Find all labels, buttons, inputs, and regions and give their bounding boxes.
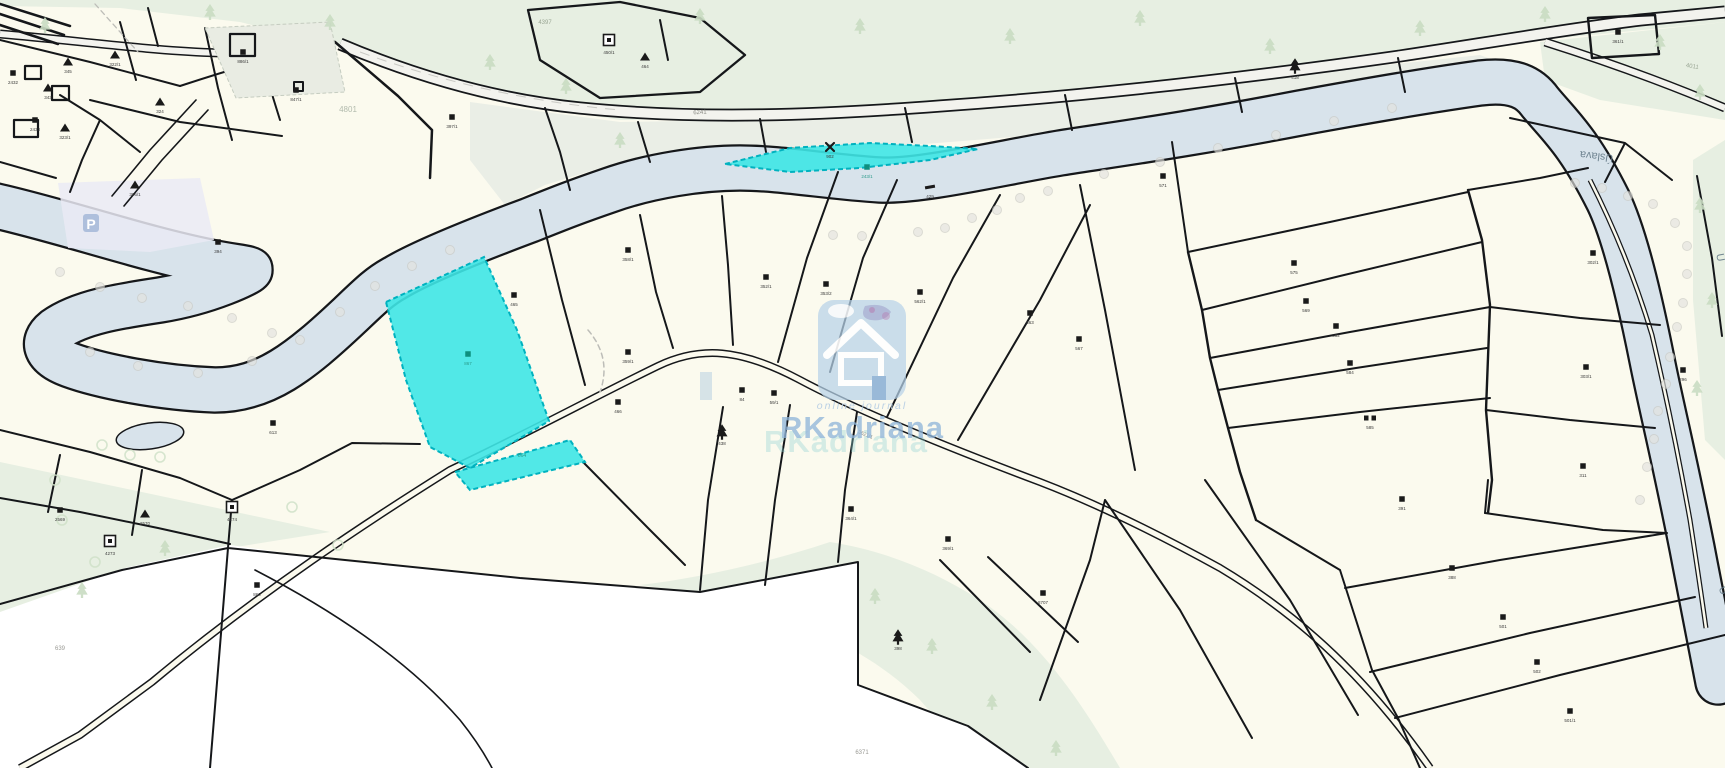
parcel-number: 902 xyxy=(826,154,834,159)
survey-dot xyxy=(1649,200,1658,209)
survey-dot xyxy=(1016,194,1025,203)
parcel-number: 613 xyxy=(269,430,277,435)
parcel-number: 398 xyxy=(894,646,902,651)
watermark-blotch-dot xyxy=(869,307,875,313)
survey-dot xyxy=(134,362,143,371)
watermark-brand: RKadriana xyxy=(780,410,944,445)
survey-dot xyxy=(371,282,380,291)
parcel-number: 2570 xyxy=(140,521,151,526)
parcel-number: 585 xyxy=(1366,425,1374,430)
parcel-number: 323/1 xyxy=(59,135,71,140)
parking-area: P xyxy=(58,178,214,252)
survey-dot xyxy=(858,232,867,241)
survey-dot xyxy=(228,314,237,323)
map-label: 864 xyxy=(518,453,527,459)
survey-dot xyxy=(1662,380,1671,389)
survey-dot xyxy=(1643,463,1652,472)
parcel-number: 388 xyxy=(1448,575,1456,580)
survey-dot xyxy=(1214,144,1223,153)
survey-dot xyxy=(336,308,345,317)
parcel-number: 361/1 xyxy=(1612,39,1624,44)
cadastral-map-viewport[interactable]: P xyxy=(0,0,1725,768)
survey-dot xyxy=(1156,158,1165,167)
parcel-number: 394 xyxy=(214,249,222,254)
parcel-number: 84 xyxy=(739,397,745,402)
survey-dot xyxy=(1624,192,1633,201)
survey-dot xyxy=(1671,219,1680,228)
parcel-number: 2432 xyxy=(8,80,19,85)
parcel-number: 466 xyxy=(614,409,622,414)
survey-dot xyxy=(268,329,277,338)
survey-dot xyxy=(1044,187,1053,196)
parcel-number: 353/2 xyxy=(820,291,832,296)
parcel-number: 502 xyxy=(1533,669,1541,674)
parcel-number: 4273 xyxy=(105,551,116,556)
parcel-number: 303/1 xyxy=(1580,374,1592,379)
survey-dot xyxy=(1683,270,1692,279)
survey-dot xyxy=(96,283,105,292)
cadastral-map-canvas[interactable]: P xyxy=(0,0,1725,768)
parcel-number: 450/1 xyxy=(603,50,615,55)
parcel-number: 311 xyxy=(1579,473,1587,478)
parcel-number: 429 xyxy=(926,194,934,199)
parcel-number: 359/1 xyxy=(622,359,634,364)
map-label: 4397 xyxy=(538,20,552,26)
survey-dot xyxy=(1679,299,1688,308)
map-label: 6371 xyxy=(855,750,869,756)
parcel-number: 391 xyxy=(1398,506,1406,511)
survey-dot xyxy=(1598,184,1607,193)
parcel-number: 571 xyxy=(1159,183,1167,188)
parcel-number: 2433 xyxy=(30,127,41,132)
map-label: 4801 xyxy=(339,105,357,114)
survey-dot xyxy=(1100,170,1109,179)
survey-dot xyxy=(914,228,923,237)
parcel-number: 501 xyxy=(1499,624,1507,629)
parcel-number: 584 xyxy=(1346,370,1354,375)
survey-dot xyxy=(248,357,257,366)
parcel-number: 59/1 xyxy=(770,400,779,405)
survey-dot xyxy=(1673,323,1682,332)
survey-dot xyxy=(408,262,417,271)
survey-dot xyxy=(184,302,193,311)
parcel-number: 465 xyxy=(510,302,518,307)
parcel-number: 575 xyxy=(1290,270,1298,275)
watermark-echo-fragment xyxy=(700,372,712,400)
survey-dot xyxy=(446,246,455,255)
map-label: 6241 xyxy=(693,110,707,117)
parcel-number: 352/1 xyxy=(760,284,772,289)
survey-dot xyxy=(1272,131,1281,140)
survey-dot xyxy=(296,336,305,345)
survey-dot xyxy=(1388,104,1397,113)
survey-dot xyxy=(86,348,95,357)
survey-dot xyxy=(1654,407,1663,416)
survey-dot xyxy=(194,369,203,378)
parcel-number: 369/1 xyxy=(942,546,954,551)
survey-dot xyxy=(56,268,65,277)
parcel-number: 364/1 xyxy=(845,516,857,521)
parcel-marker: 4274 xyxy=(227,502,238,523)
parking-icon-letter: P xyxy=(86,216,95,232)
parcel-number: 567 xyxy=(1075,346,1083,351)
parcel-number: 860 xyxy=(253,592,261,597)
parcel-number: 8707 xyxy=(1038,600,1049,605)
parcel-number: 886/1 xyxy=(237,59,249,64)
parcel-number: 562/1 xyxy=(914,299,926,304)
survey-dot xyxy=(941,224,950,233)
parcel-number: 464 xyxy=(641,64,649,69)
survey-dot xyxy=(829,231,838,240)
survey-dot xyxy=(993,206,1002,215)
parcel-number: 322/1 xyxy=(109,62,121,67)
survey-dot xyxy=(1330,117,1339,126)
parcel-number: 296 xyxy=(1679,377,1687,382)
parcel-number: 4274 xyxy=(227,517,238,522)
parcel-number: 343 xyxy=(44,95,52,100)
watermark-house-door xyxy=(872,376,886,400)
parcel-number: 438 xyxy=(718,441,726,446)
parcel-number: 867 xyxy=(464,361,472,366)
parcel-number: 563 xyxy=(1026,320,1034,325)
survey-dot xyxy=(1636,496,1645,505)
parcel-number: 345 xyxy=(64,69,72,74)
parcel-number: 324 xyxy=(156,109,164,114)
survey-dot xyxy=(1571,179,1580,188)
parcel-marker: 4273 xyxy=(105,536,116,557)
parcel-number: 582 xyxy=(1332,333,1340,338)
parcel-number: 358/1 xyxy=(622,257,634,262)
parcel-marker: 450/1 xyxy=(603,35,615,56)
parcel-number: 2569 xyxy=(55,517,66,522)
parcel-number: 302/1 xyxy=(1587,260,1599,265)
survey-dot xyxy=(138,294,147,303)
survey-dot xyxy=(1666,353,1675,362)
parcel-number: 501/1 xyxy=(1564,718,1576,723)
parcel-number: 243/1 xyxy=(861,174,873,179)
parcel-number: 396/1 xyxy=(129,192,141,197)
survey-dot xyxy=(1650,435,1659,444)
parcel-number: 418 xyxy=(1291,75,1299,80)
survey-dot xyxy=(1683,242,1692,251)
survey-dot xyxy=(968,214,977,223)
parcel-number: 847/1 xyxy=(290,97,302,102)
parcel-number: 569 xyxy=(1302,308,1310,313)
map-label: 639 xyxy=(55,646,66,652)
watermark-cloud xyxy=(828,304,854,318)
watermark-blotch-dot xyxy=(882,312,890,320)
parcel-number: 397/1 xyxy=(446,124,458,129)
